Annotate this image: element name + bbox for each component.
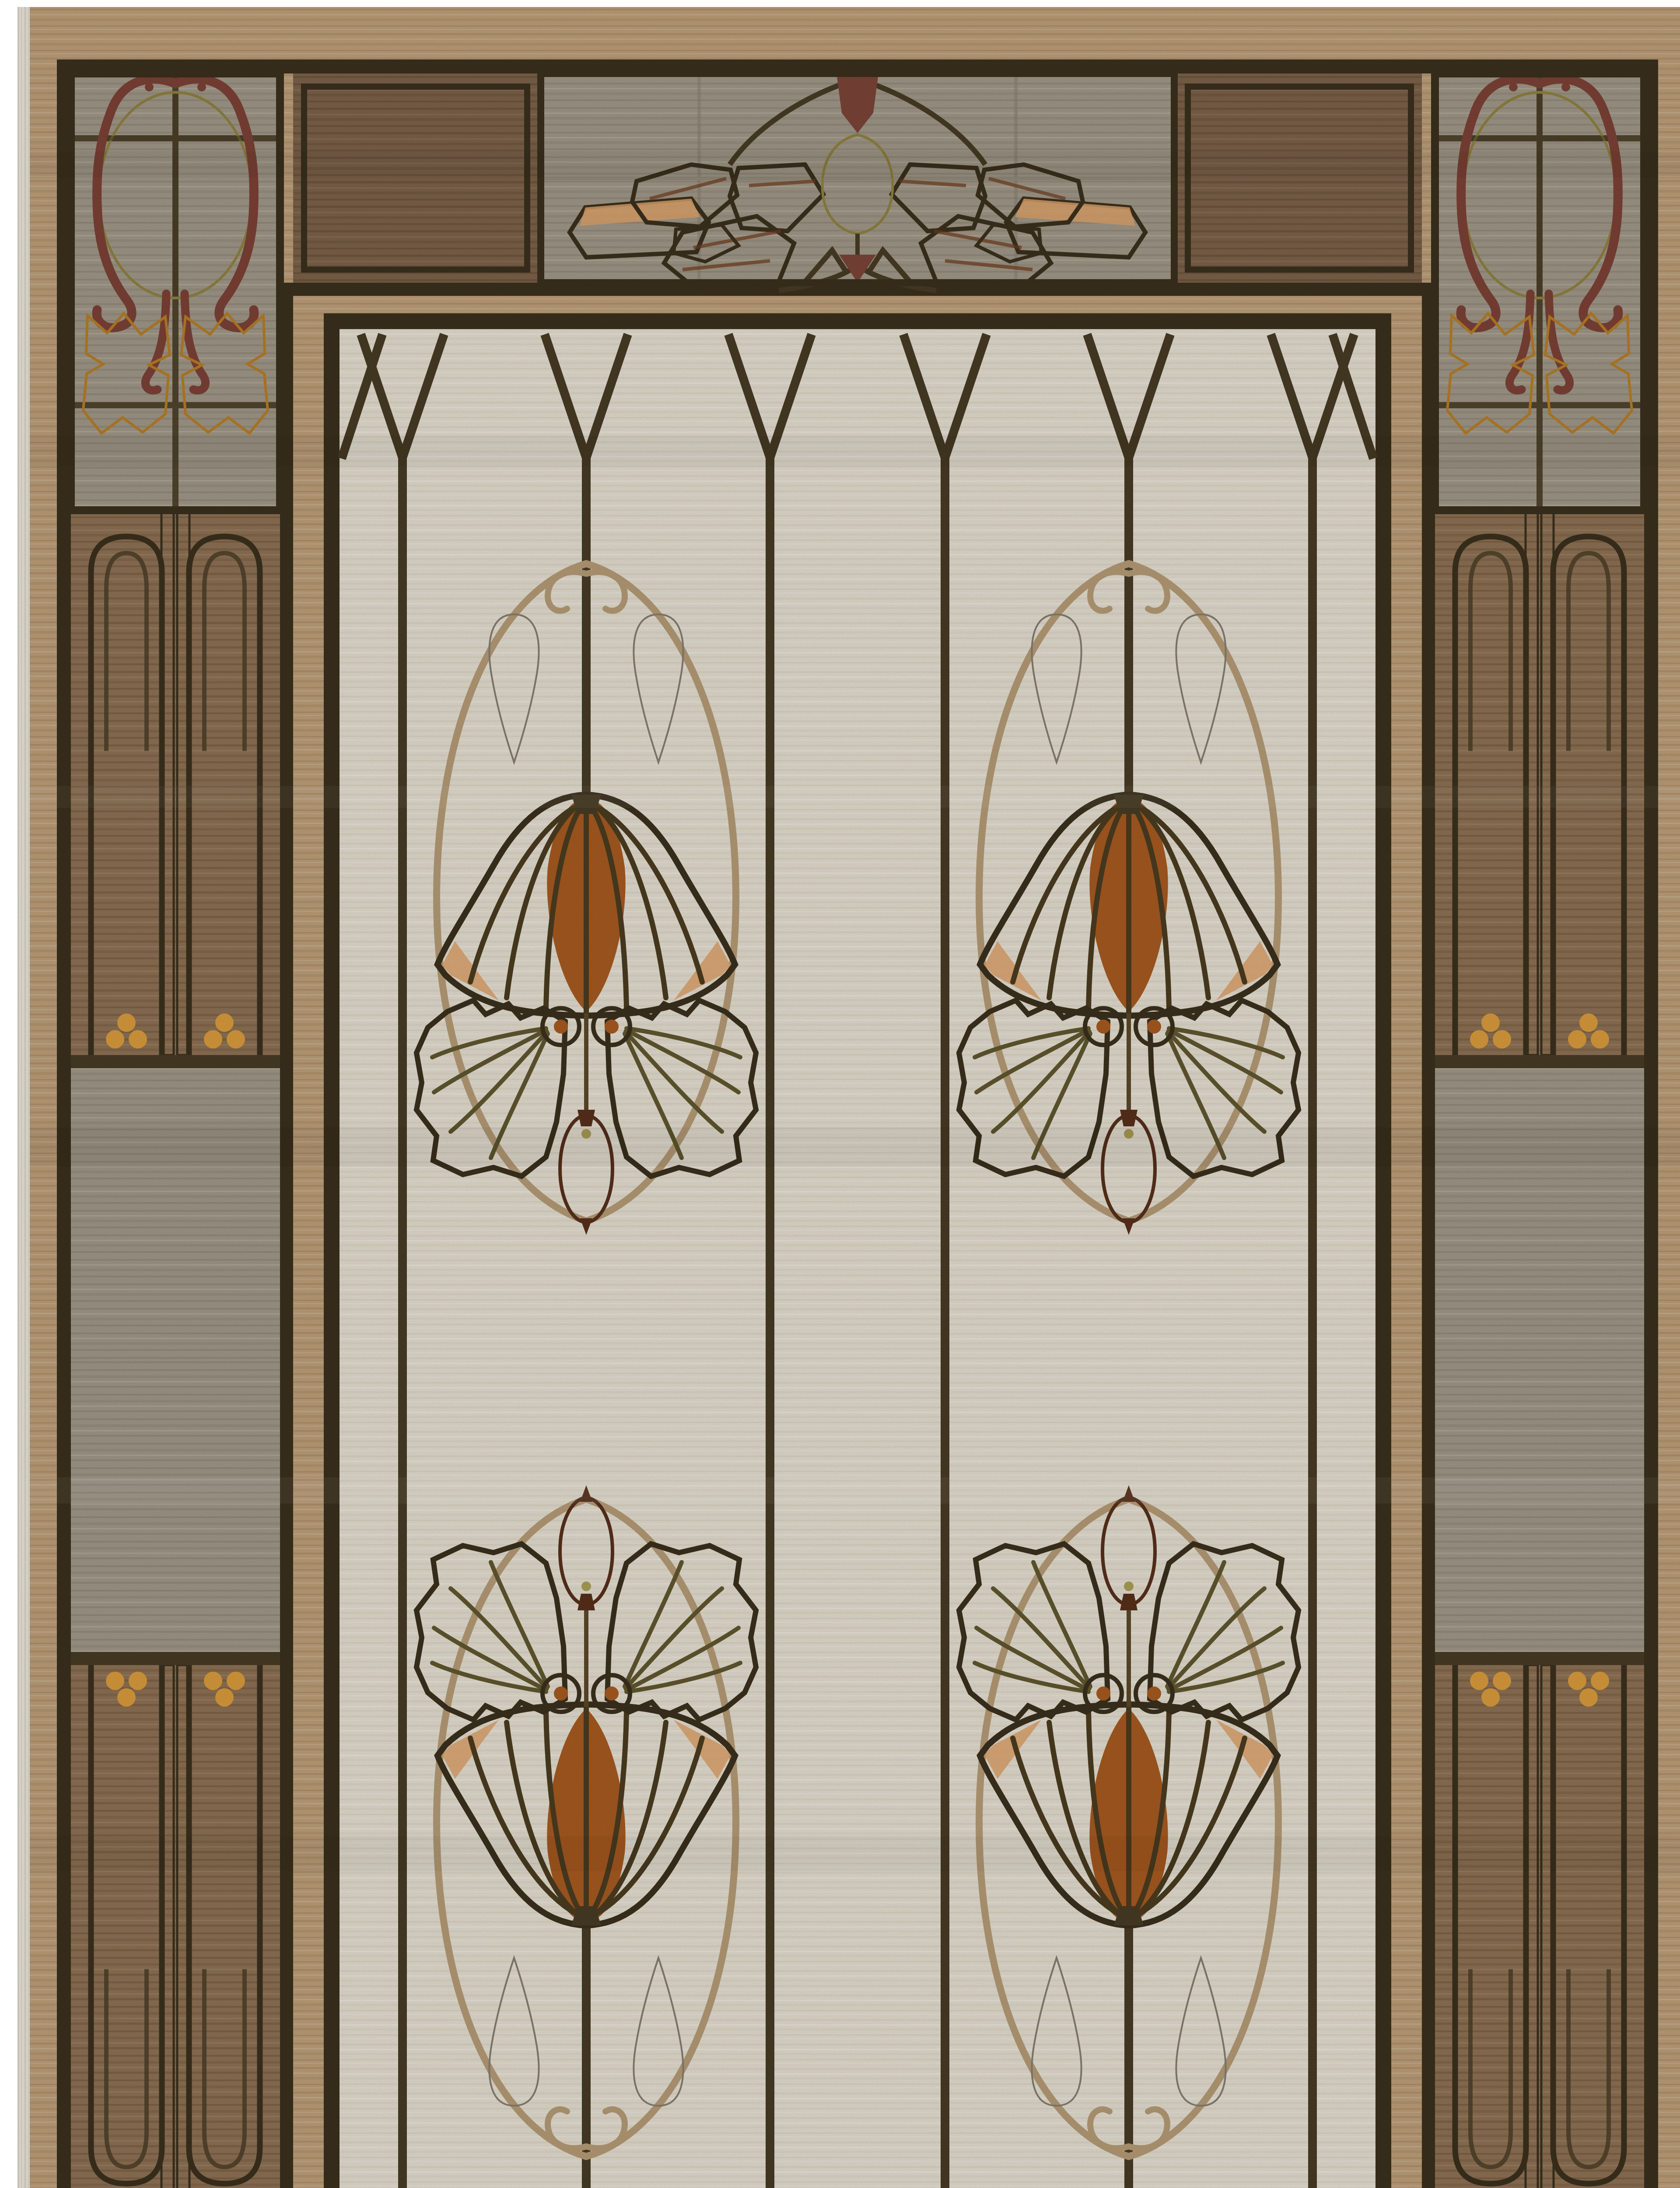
rug-artwork — [17, 7, 1680, 2188]
fabric-grain-overlay — [17, 7, 1680, 2188]
rug-photo — [17, 7, 1680, 2188]
